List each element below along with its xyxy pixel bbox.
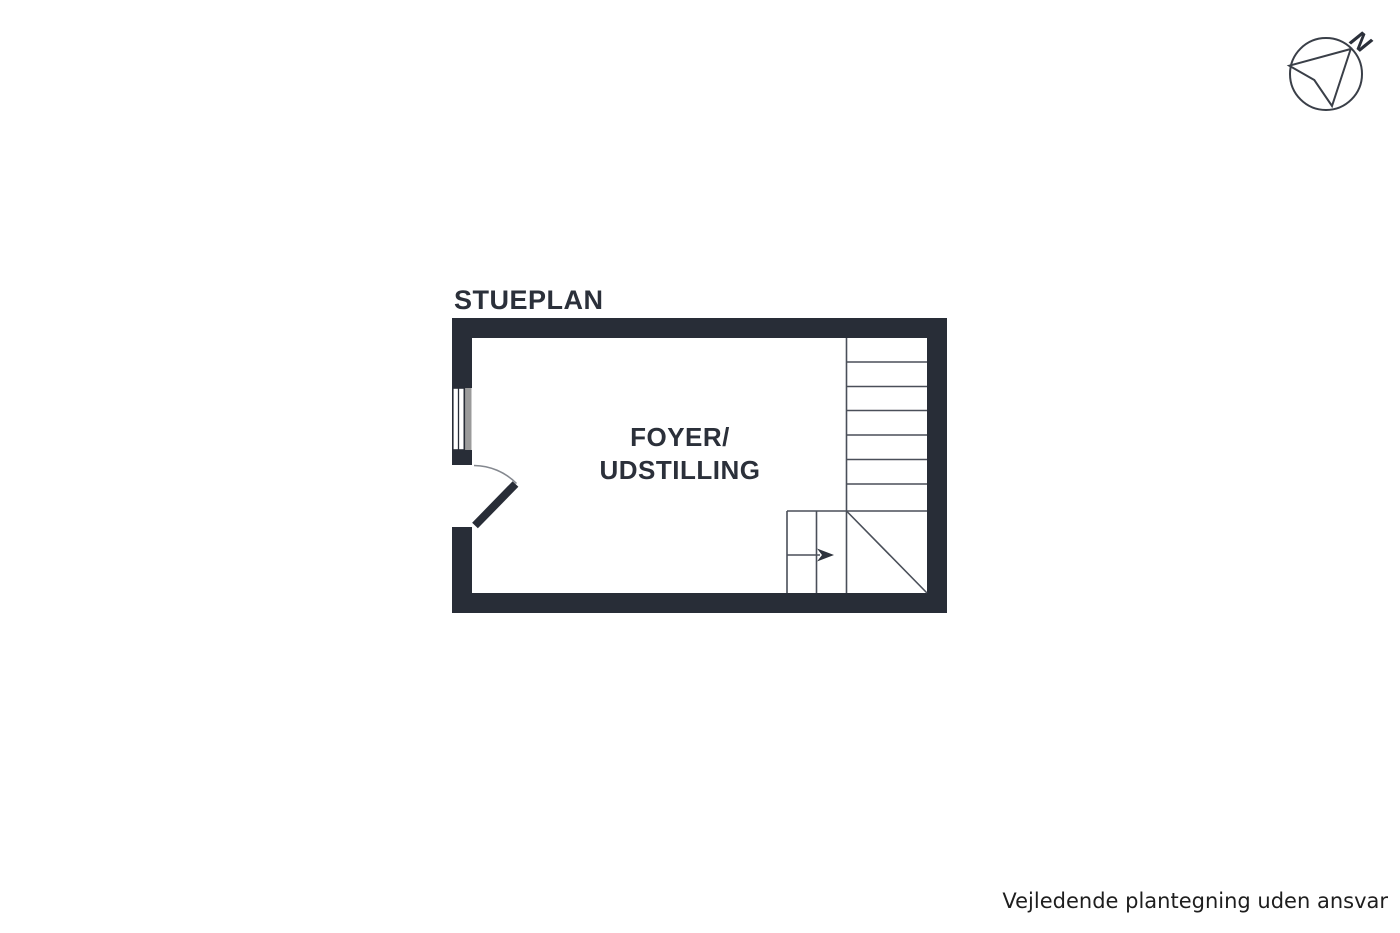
floorplan-drawing: N STUEPLAN: [0, 0, 1400, 933]
stair-direction-arrow-icon: [787, 549, 834, 562]
window-symbol: [453, 388, 472, 450]
window-inner-gray: [464, 388, 472, 450]
wall-right: [927, 318, 947, 613]
wall-top: [452, 318, 947, 338]
door-symbol: [474, 466, 517, 526]
door-leaf: [475, 484, 516, 526]
wall-left-lower: [452, 527, 472, 613]
plan-title: STUEPLAN: [454, 285, 604, 315]
wall-bottom: [452, 593, 947, 613]
room-label-line1: FOYER/: [630, 422, 730, 452]
room-label-line2: UDSTILLING: [600, 455, 761, 485]
room-label: FOYER/ UDSTILLING: [600, 422, 761, 485]
disclaimer-text: Vejledende plantegning uden ansvar: [1002, 889, 1388, 913]
wall-left-middle: [452, 450, 472, 465]
stair-winder-diagonal: [847, 511, 928, 593]
door-swing-arc-icon: [474, 466, 517, 484]
wall-left-upper: [452, 338, 472, 388]
compass-icon: N: [1289, 25, 1377, 110]
floorplan-page: N STUEPLAN: [0, 0, 1400, 933]
staircase: [787, 338, 927, 593]
